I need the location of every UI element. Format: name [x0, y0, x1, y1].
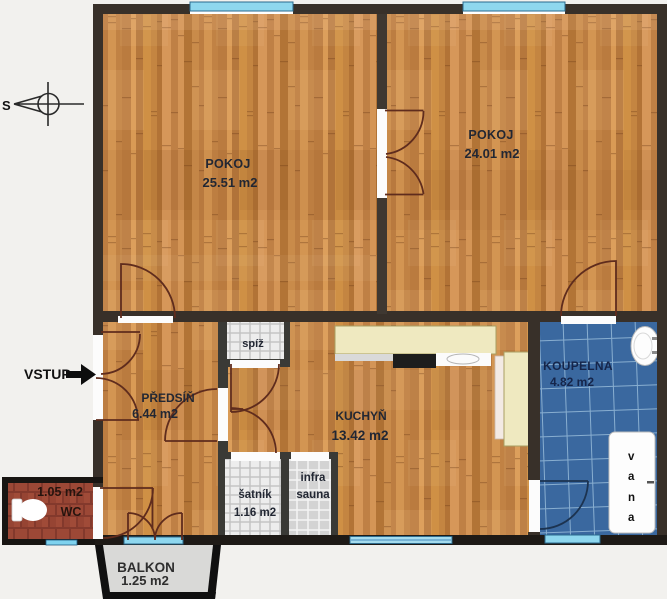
svg-text:4.82 m2: 4.82 m2 [550, 375, 594, 389]
svg-text:24.01 m2: 24.01 m2 [465, 146, 520, 161]
svg-text:1.16 m2: 1.16 m2 [234, 507, 276, 519]
svg-text:a: a [628, 471, 635, 483]
svg-text:13.42 m2: 13.42 m2 [331, 428, 388, 443]
svg-text:KOUPELNA: KOUPELNA [543, 359, 613, 373]
svg-text:v: v [628, 451, 635, 463]
svg-text:VSTUP: VSTUP [24, 366, 71, 382]
svg-text:šatník: šatník [238, 489, 272, 501]
svg-text:KUCHYŇ: KUCHYŇ [335, 408, 386, 423]
svg-text:6.44 m2: 6.44 m2 [132, 407, 178, 421]
svg-text:spíž: spíž [242, 338, 264, 350]
svg-text:25.51 m2: 25.51 m2 [203, 175, 258, 190]
svg-text:1.05 m2: 1.05 m2 [37, 485, 83, 499]
svg-text:a: a [628, 512, 635, 524]
svg-text:POKOJ: POKOJ [468, 128, 513, 142]
svg-text:1.25 m2: 1.25 m2 [121, 573, 169, 588]
svg-text:n: n [628, 492, 635, 504]
svg-text:sauna: sauna [296, 489, 330, 501]
svg-text:infra: infra [301, 472, 327, 484]
svg-text:PŘEDSÍŇ: PŘEDSÍŇ [141, 390, 194, 405]
svg-text:POKOJ: POKOJ [205, 157, 250, 171]
svg-text:S: S [2, 98, 11, 113]
svg-text:WC: WC [61, 505, 82, 519]
